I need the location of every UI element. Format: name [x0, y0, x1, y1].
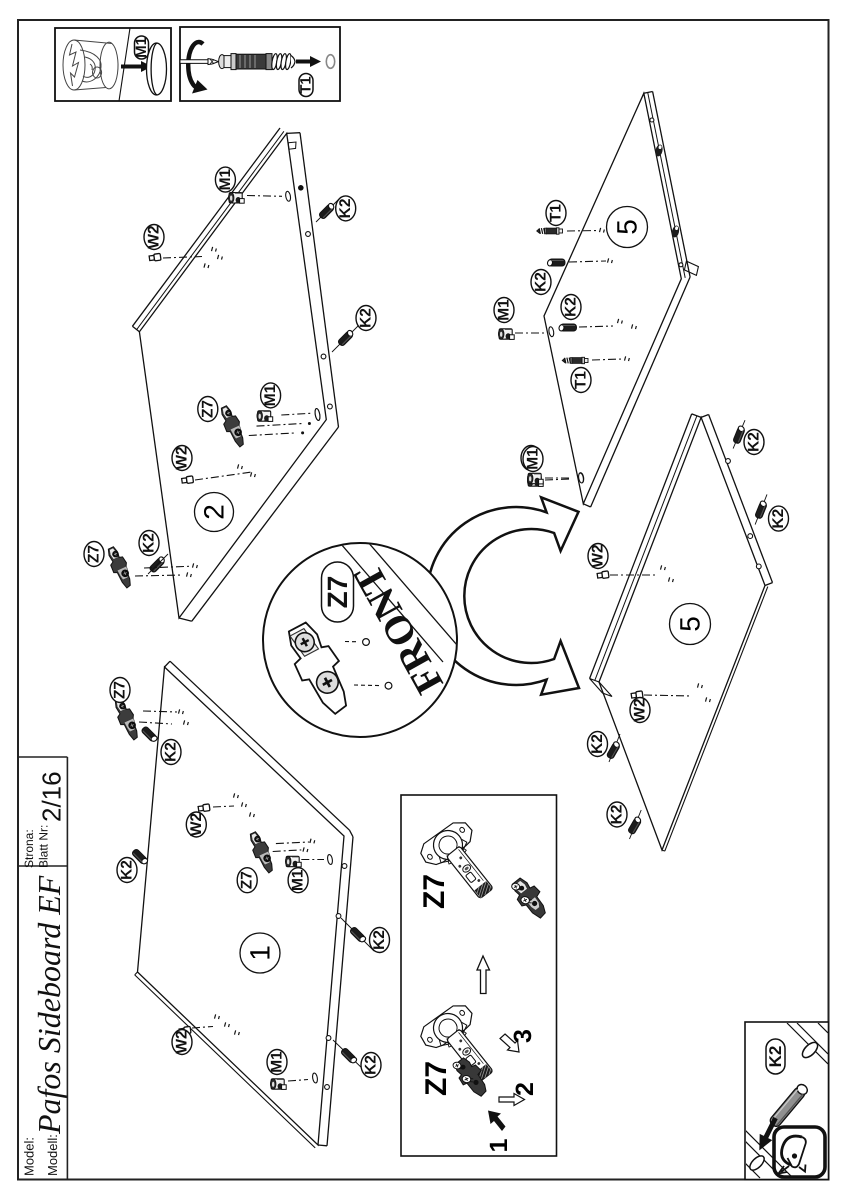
svg-text:K2: K2 — [163, 742, 180, 762]
svg-text:T1: T1 — [298, 76, 315, 94]
svg-text:Z7: Z7 — [86, 545, 103, 563]
svg-text:K2: K2 — [766, 1046, 785, 1068]
svg-text:K2: K2 — [141, 533, 158, 553]
svg-text:W2: W2 — [632, 698, 649, 721]
svg-text:M1: M1 — [217, 168, 234, 190]
svg-text:K2: K2 — [589, 734, 606, 754]
svg-text:K2: K2 — [337, 198, 354, 218]
svg-text:Z7: Z7 — [322, 576, 353, 609]
svg-text:T1: T1 — [573, 371, 590, 389]
svg-text:Strona:: Strona: — [22, 829, 36, 868]
svg-text:1: 1 — [245, 945, 276, 961]
svg-text:K2: K2 — [746, 432, 763, 452]
svg-text:Pafos Sideboard EF: Pafos Sideboard EF — [31, 875, 67, 1135]
svg-text:3: 3 — [509, 1029, 537, 1043]
svg-text:Z7: Z7 — [239, 871, 256, 889]
svg-text:T1: T1 — [548, 204, 565, 222]
svg-text:Z7: Z7 — [418, 874, 451, 909]
svg-text:K2: K2 — [363, 1055, 380, 1075]
svg-text:2: 2 — [511, 1082, 539, 1096]
svg-text:K2: K2 — [533, 272, 550, 292]
svg-text:K2: K2 — [609, 805, 626, 825]
svg-text:W2: W2 — [188, 813, 205, 836]
svg-text:1: 1 — [485, 1139, 513, 1153]
svg-text:5: 5 — [612, 219, 643, 235]
svg-text:K2: K2 — [563, 297, 580, 317]
svg-text:M1: M1 — [525, 448, 542, 470]
svg-text:5: 5 — [675, 616, 706, 632]
svg-text:2: 2 — [199, 504, 230, 520]
svg-text:Modell:: Modell: — [45, 1134, 60, 1176]
svg-text:Model:: Model: — [22, 1137, 37, 1176]
svg-text:Z7: Z7 — [199, 400, 216, 418]
svg-text:M1: M1 — [269, 1051, 286, 1073]
svg-text:W2: W2 — [590, 544, 607, 567]
svg-text:Blatt Nr:: Blatt Nr: — [37, 825, 51, 868]
svg-text:M1: M1 — [290, 869, 307, 891]
svg-text:M1: M1 — [496, 299, 513, 321]
svg-text:Z7: Z7 — [420, 1061, 453, 1096]
svg-text:K2: K2 — [770, 509, 787, 529]
svg-text:K2: K2 — [119, 860, 136, 880]
svg-text:M1: M1 — [262, 384, 279, 406]
svg-text:K2: K2 — [371, 930, 388, 950]
svg-text:W2: W2 — [174, 446, 191, 469]
svg-text:W2: W2 — [146, 225, 163, 248]
svg-text:W2: W2 — [174, 1030, 191, 1053]
svg-text:Z7: Z7 — [112, 681, 129, 699]
svg-text:2/16: 2/16 — [37, 771, 67, 822]
svg-text:K2: K2 — [358, 308, 375, 328]
